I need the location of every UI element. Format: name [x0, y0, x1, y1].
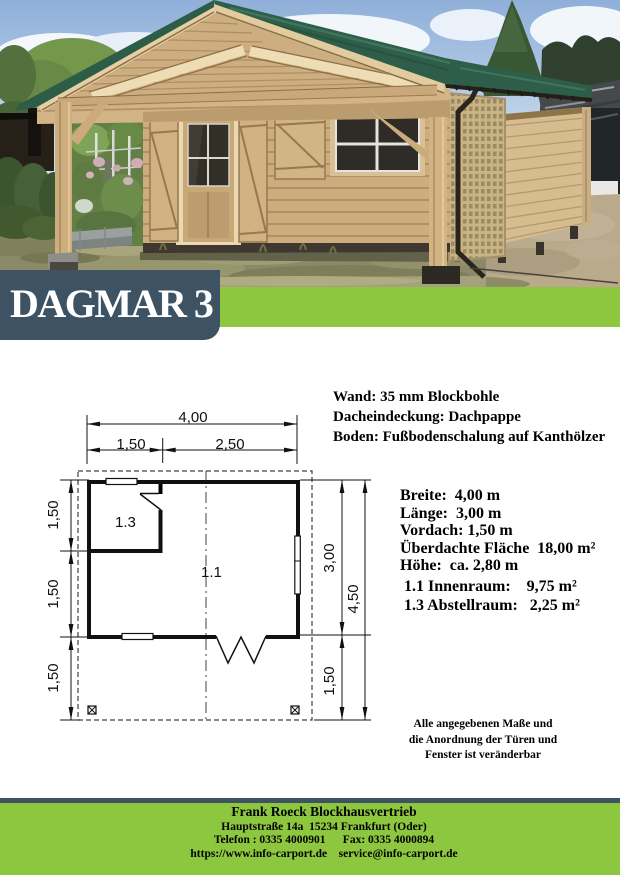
- svg-text:3,00: 3,00: [321, 543, 338, 572]
- svg-text:1,50: 1,50: [321, 666, 338, 695]
- svg-text:1.3: 1.3: [115, 514, 136, 531]
- svg-text:1,50: 1,50: [116, 436, 145, 453]
- svg-text:1,50: 1,50: [45, 663, 62, 692]
- svg-text:4,50: 4,50: [345, 584, 362, 613]
- svg-text:4,00: 4,00: [178, 409, 207, 426]
- svg-text:2,50: 2,50: [215, 436, 244, 453]
- svg-text:1,50: 1,50: [45, 579, 62, 608]
- svg-text:1.1: 1.1: [201, 564, 222, 581]
- svg-text:1,50: 1,50: [45, 500, 62, 529]
